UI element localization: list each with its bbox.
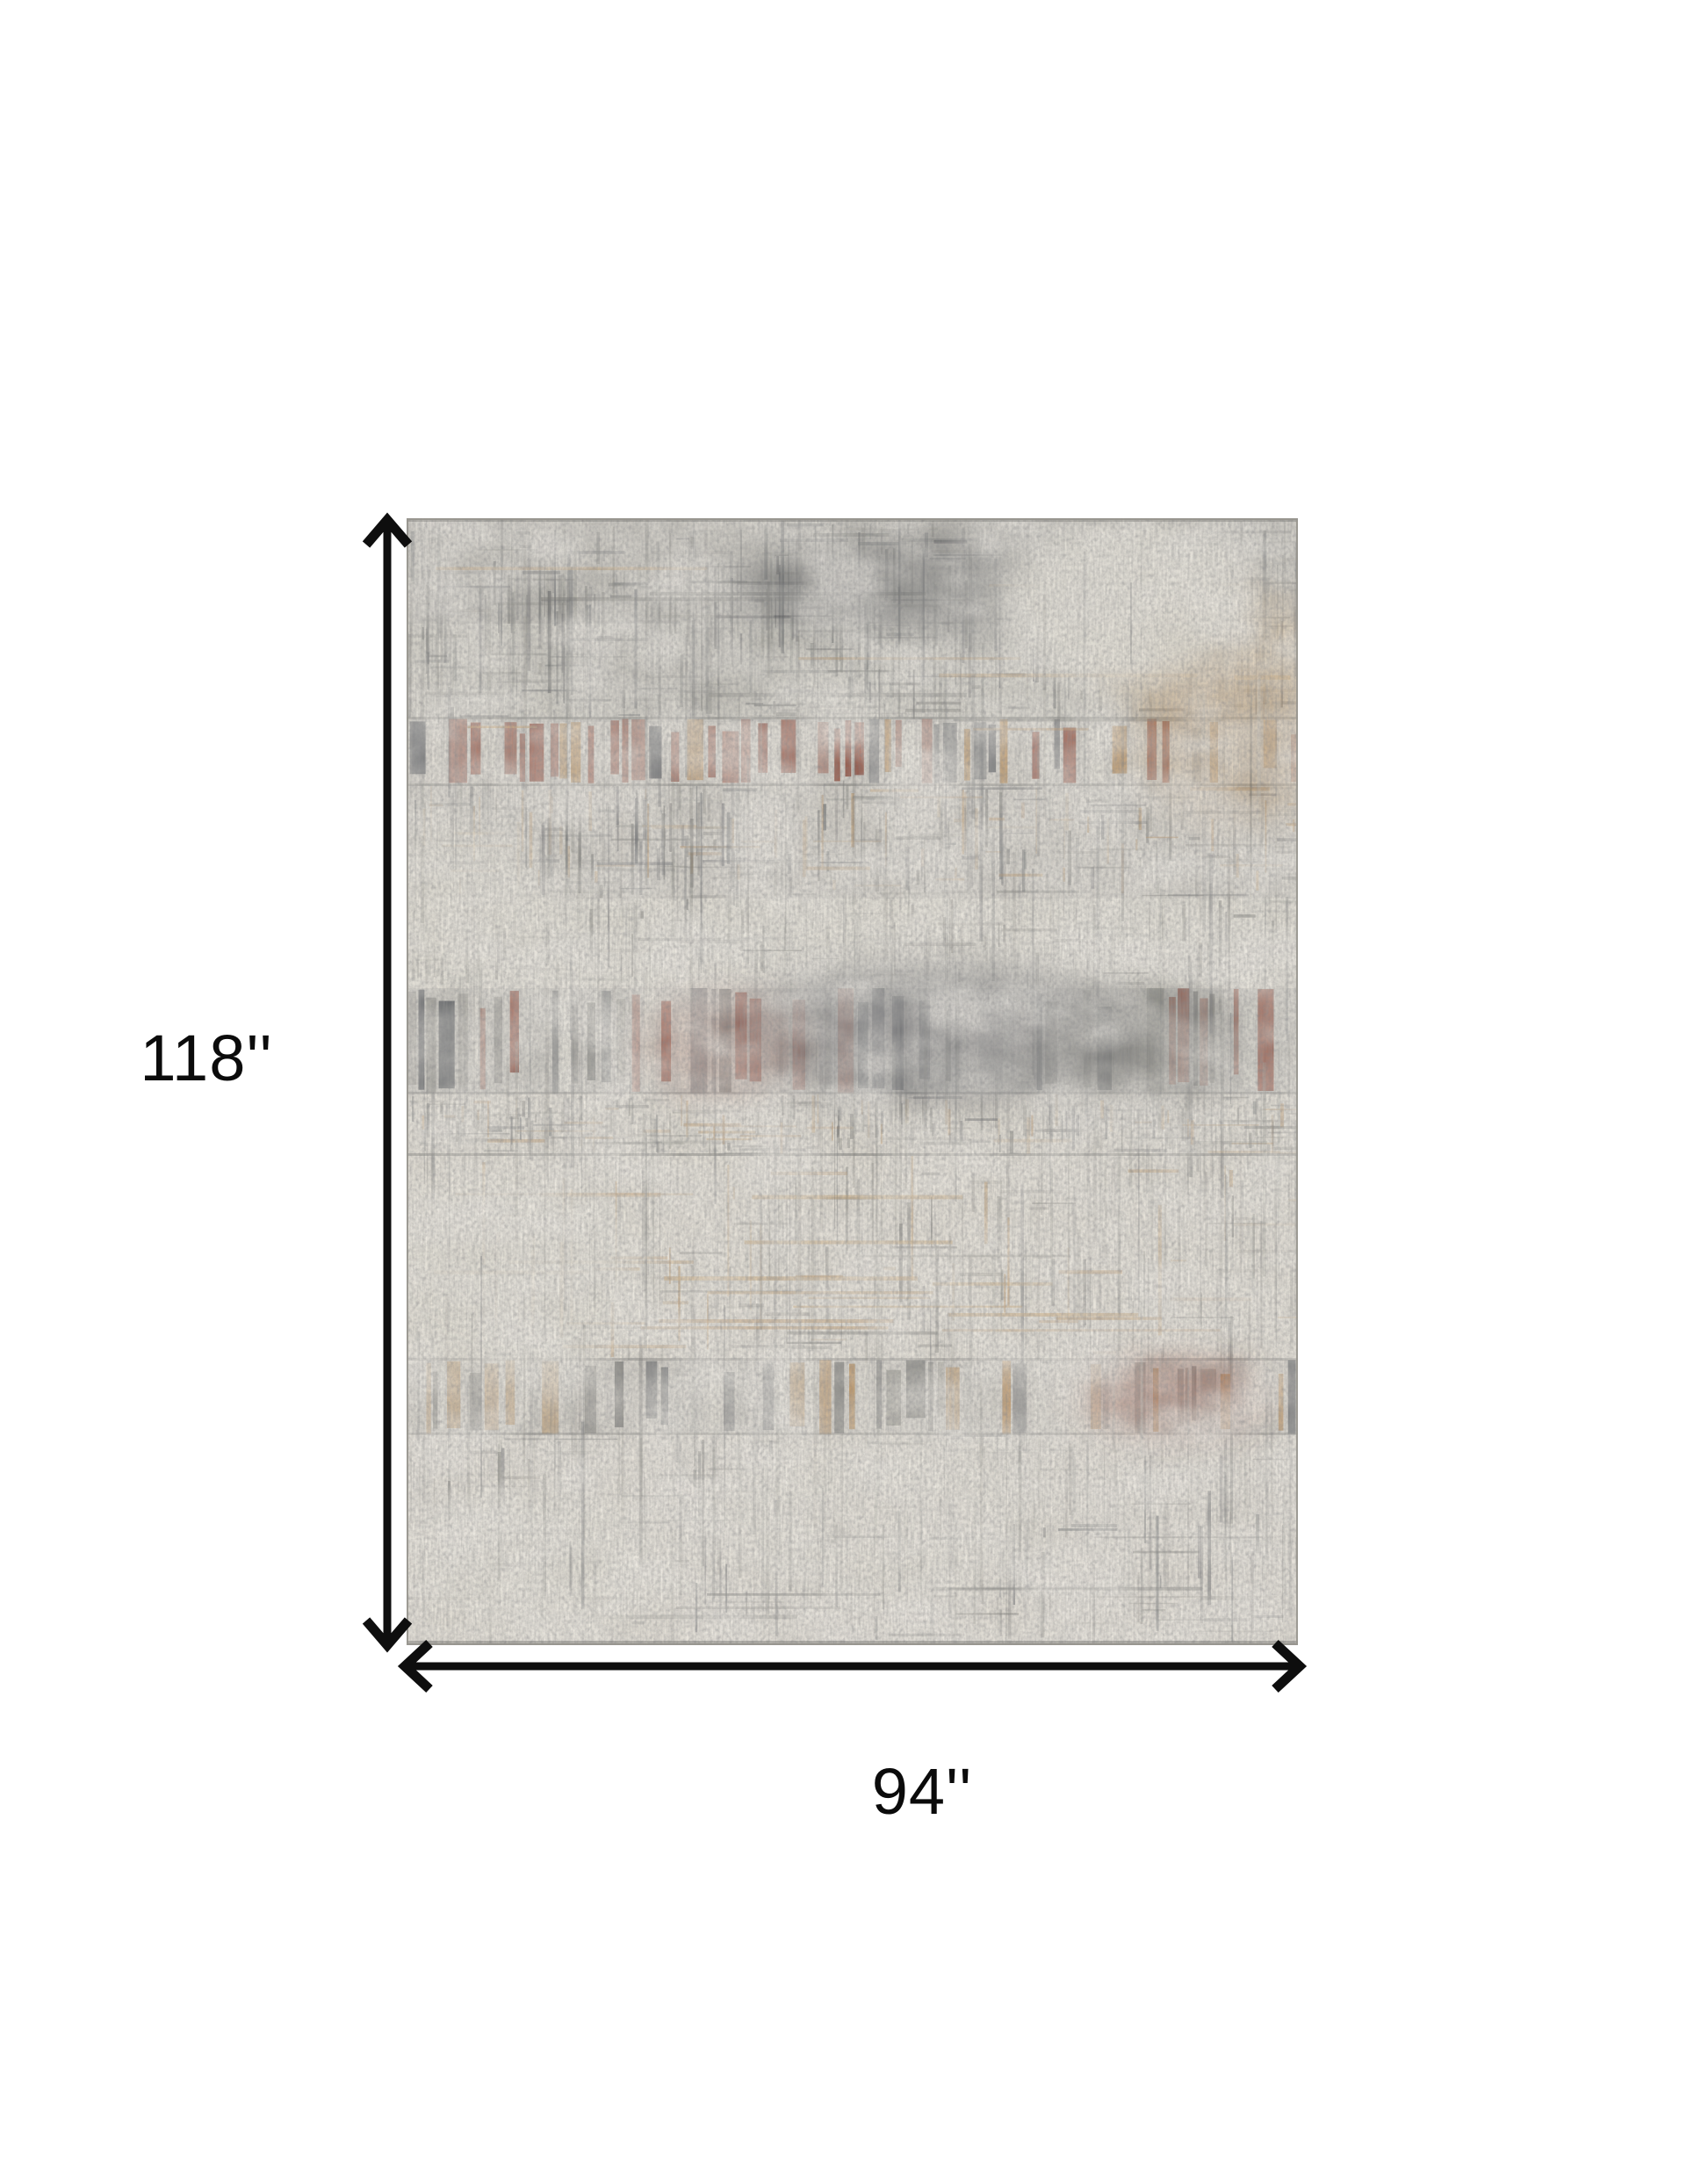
rug-image [407,518,1298,1645]
height-dimension-arrow [366,520,408,1645]
width-dimension-arrow [405,1643,1300,1689]
arrow-left-icon [405,1643,429,1689]
dimension-diagram: 118'' 94'' [0,0,1708,2166]
height-dimension-label: 118'' [101,1026,312,1091]
width-dimension-label: 94'' [817,1759,1027,1824]
arrow-up-icon [366,520,408,545]
arrow-down-icon [366,1621,408,1645]
rug-texture-svg [407,518,1298,1645]
arrow-right-icon [1275,1643,1300,1689]
